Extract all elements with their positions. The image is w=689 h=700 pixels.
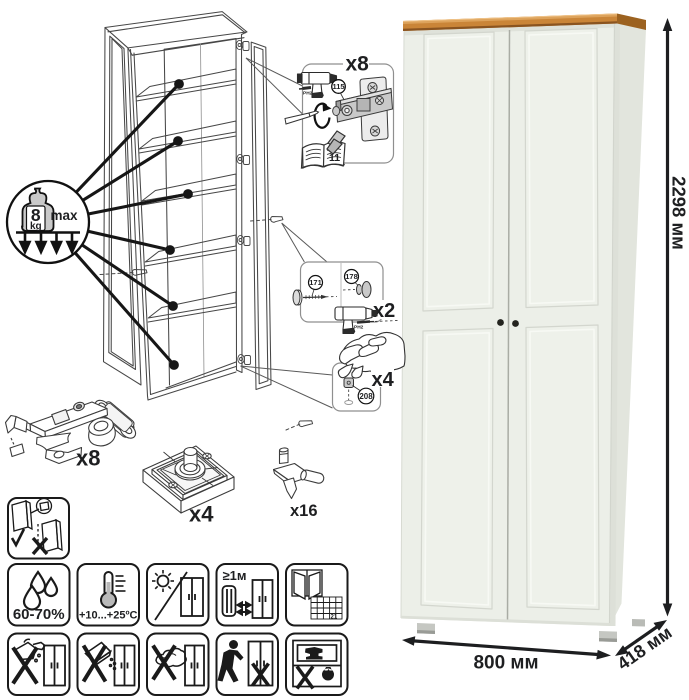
svg-text:178: 178 xyxy=(345,272,358,281)
svg-text:x8: x8 xyxy=(346,53,370,76)
svg-text:x4: x4 xyxy=(189,502,214,527)
svg-text:171: 171 xyxy=(309,278,322,287)
svg-text:11: 11 xyxy=(329,152,340,164)
svg-text:60-70%: 60-70% xyxy=(13,606,65,623)
svg-text:208: 208 xyxy=(359,392,373,401)
svg-text:PH2: PH2 xyxy=(303,91,313,97)
svg-text:max: max xyxy=(51,208,79,223)
svg-text:x16: x16 xyxy=(290,502,318,520)
svg-text:2298 мм: 2298 мм xyxy=(669,176,689,250)
svg-text:800 мм: 800 мм xyxy=(473,653,538,674)
svg-text:kg: kg xyxy=(30,221,42,232)
svg-text:x4: x4 xyxy=(372,369,395,391)
svg-text:115: 115 xyxy=(332,82,344,91)
svg-text:+10...+25ºC: +10...+25ºC xyxy=(79,610,138,622)
svg-text:21: 21 xyxy=(331,615,338,621)
svg-text:≥1м: ≥1м xyxy=(223,568,247,583)
svg-text:PH2: PH2 xyxy=(354,325,364,331)
svg-text:x8: x8 xyxy=(76,446,100,471)
